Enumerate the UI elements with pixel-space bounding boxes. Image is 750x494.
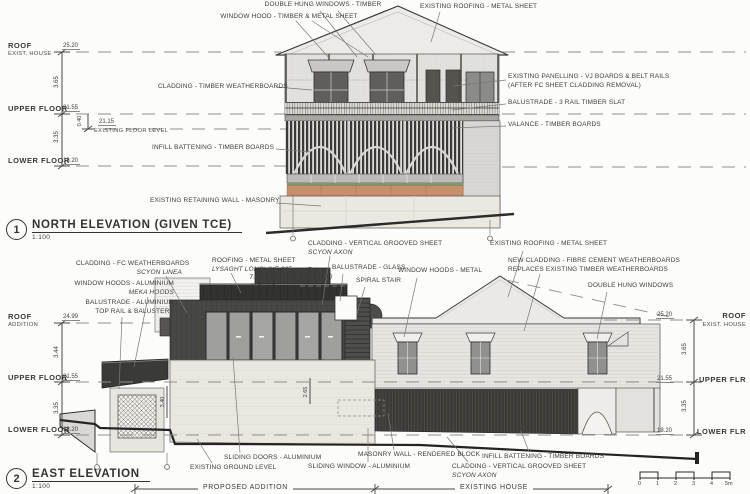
callout-sliding-doors: SLIDING DOORS - ALUMINIUM [224, 454, 321, 463]
callout-roofing-metal-sheet-line1: ROOFING - METAL SHEET [212, 257, 296, 266]
east-right-roof-sub: EXIST. HOUSE [690, 322, 746, 328]
north-title: NORTH ELEVATION (GIVEN TCE) [32, 219, 242, 233]
callout-existing-panelling-line2: (AFTER FC SHEET CLADDING REMOVAL) [508, 82, 669, 91]
east-dim-masonry-left: 3.40 [160, 385, 166, 419]
east-scale: 1:100 [32, 483, 150, 490]
callout-window-hood-timber: WINDOW HOOD - TIMBER & METAL SHEET [203, 13, 375, 22]
east-right-lower-rl: 18.20 [656, 428, 674, 435]
span-proposed-addition: PROPOSED ADDITION [198, 484, 293, 491]
east-left-lower-label: LOWER FLOOR [8, 425, 70, 434]
callout-infill-battening-east: INFILL BATTENING - TIMBER BOARDS [482, 453, 604, 462]
scalebar-tick-3: 3 [692, 481, 695, 487]
north-title-block: 1 NORTH ELEVATION (GIVEN TCE) 1:100 [6, 219, 242, 241]
east-left-roof-rl: 24.99 [62, 314, 80, 321]
callout-cladding-timber-weatherboards: CLADDING - TIMBER WEATHERBOARDS [158, 83, 274, 92]
scalebar-tick-4: 4 [710, 481, 713, 487]
callout-cladding-vgs-bottom-line2: SCYON AXON [452, 472, 586, 481]
east-dim-masonry-right: 2.65 [303, 375, 309, 409]
callout-valance: VALANCE - TIMBER BOARDS [508, 121, 601, 130]
callout-cladding-fc: CLADDING - FC WEATHERBOARDS SCYON LINEA [76, 260, 182, 277]
callout-window-hoods-metal: WINDOW HOODS - METAL [398, 267, 482, 276]
callout-existing-roofing-east: EXISTING ROOFING - METAL SHEET [490, 240, 607, 249]
callout-sliding-window: SLIDING WINDOW - ALUMINIUM [308, 463, 410, 472]
north-roof-level-sub: EXIST. HOUSE [8, 51, 52, 57]
callout-window-hoods-aluminium-line1: WINDOW HOODS - ALUMINIUM [72, 280, 174, 289]
callout-cladding-vgs-top-line1: CLADDING - VERTICAL GROOVED SHEET [308, 240, 442, 249]
scalebar-tick-2: 2 [674, 481, 677, 487]
callout-existing-roofing-north: EXISTING ROOFING - METAL SHEET [420, 3, 537, 12]
callout-cladding-vgs-top-line2: SCYON AXON [308, 249, 442, 258]
north-dim-roof-upper: 3.65 [54, 65, 60, 99]
east-right-dim-top: 3.65 [682, 332, 688, 366]
north-efl-label: EXISTING FLOOR LEVEL [94, 128, 168, 134]
callout-cladding-vgs-bottom-line1: CLADDING - VERTICAL GROOVED SHEET [452, 463, 586, 472]
callout-new-cladding-line2: REPLACES EXISTING TIMBER WEATHERBOARDS [508, 266, 680, 275]
east-left-lower-rl: 18.20 [62, 427, 80, 434]
callout-retaining-wall: EXISTING RETAINING WALL - MASONRY [150, 197, 274, 206]
east-right-upper-rl: 21.55 [656, 376, 674, 383]
north-lower-rl: 18.20 [62, 158, 80, 165]
scalebar-tick-1: 1 [656, 481, 659, 487]
callout-balustrade-aluminium-line1: BALUSTRADE - ALUMINIUM [52, 299, 174, 308]
callout-cladding-vgs-top: CLADDING - VERTICAL GROOVED SHEET SCYON … [308, 240, 442, 257]
span-existing-house: EXISTING HOUSE [455, 484, 533, 491]
east-left-roof-sub: ADDITION [8, 322, 38, 328]
east-right-upper-label: UPPER FLR [696, 375, 746, 384]
callout-balustrade-3-rail: BALUSTRADE - 3 RAIL TIMBER SLAT [508, 99, 625, 108]
east-left-dim-top: 3.44 [54, 335, 60, 369]
east-left-upper-label: UPPER FLOOR [8, 373, 68, 382]
north-lower-level-label: LOWER FLOOR [8, 156, 70, 165]
callout-new-cladding: NEW CLADDING - FIBRE CEMENT WEATHERBOARD… [508, 257, 680, 274]
east-title: EAST ELEVATION [32, 468, 150, 482]
drawing-sheet: ROOF EXIST. HOUSE 25.20 3.65 UPPER FLOOR… [0, 0, 750, 494]
east-right-roof-label: ROOF [696, 311, 746, 320]
east-right-roof-rl: 25.20 [656, 312, 674, 319]
east-left-upper-rl: 21.55 [62, 374, 80, 381]
north-dim-upper-efl: 0.40 [77, 104, 83, 138]
callout-infill-battening-north: INFILL BATTENING - TIMBER BOARDS [152, 144, 274, 153]
east-left-roof-label: ROOF [8, 312, 32, 321]
callout-new-cladding-line1: NEW CLADDING - FIBRE CEMENT WEATHERBOARD… [508, 257, 680, 266]
north-efl-rl: 21.15 [98, 119, 116, 126]
callout-balustrade-glass: BALUSTRADE - GLASS [332, 264, 406, 273]
callout-double-hung-windows-timber: DOUBLE HUNG WINDOWS - TIMBER [238, 1, 408, 10]
callout-masonry-wall: MASONRY WALL - RENDERED BLOCK [358, 451, 480, 460]
callout-cladding-vgs-bottom: CLADDING - VERTICAL GROOVED SHEET SCYON … [452, 463, 586, 480]
scalebar-tick-0: 0 [638, 481, 641, 487]
north-view-number: 1 [6, 219, 27, 240]
north-upper-level-label: UPPER FLOOR [8, 104, 68, 113]
scalebar-tick-5: 5m [725, 481, 733, 487]
east-left-dim-bottom: 3.35 [54, 391, 60, 425]
east-view-number: 2 [6, 468, 27, 489]
callout-window-hoods-aluminium-line2: MEKA HOODS [72, 289, 174, 298]
north-scale: 1:100 [32, 234, 242, 241]
callout-window-hoods-aluminium: WINDOW HOODS - ALUMINIUM MEKA HOODS [72, 280, 174, 297]
callout-existing-ground-level: EXISTING GROUND LEVEL [190, 464, 276, 473]
callout-existing-panelling: EXISTING PANELLING - VJ BOARDS & BELT RA… [508, 73, 669, 90]
north-roof-level-label: ROOF [8, 41, 32, 50]
north-dim-upper-lower: 3.35 [54, 120, 60, 154]
east-right-lower-label: LOWER FLR [696, 427, 746, 436]
callout-cladding-fc-line1: CLADDING - FC WEATHERBOARDS [76, 260, 182, 269]
callout-double-hung-windows-east: DOUBLE HUNG WINDOWS [588, 282, 673, 291]
east-right-dim-bottom: 3.35 [682, 389, 688, 423]
north-roof-rl: 25.20 [62, 43, 80, 50]
callout-cladding-fc-line2: SCYON LINEA [76, 269, 182, 278]
east-title-block: 2 EAST ELEVATION 1:100 [6, 468, 150, 490]
callout-existing-panelling-line1: EXISTING PANELLING - VJ BOARDS & BELT RA… [508, 73, 669, 82]
callout-spiral-stair: SPIRAL STAIR [356, 277, 401, 286]
